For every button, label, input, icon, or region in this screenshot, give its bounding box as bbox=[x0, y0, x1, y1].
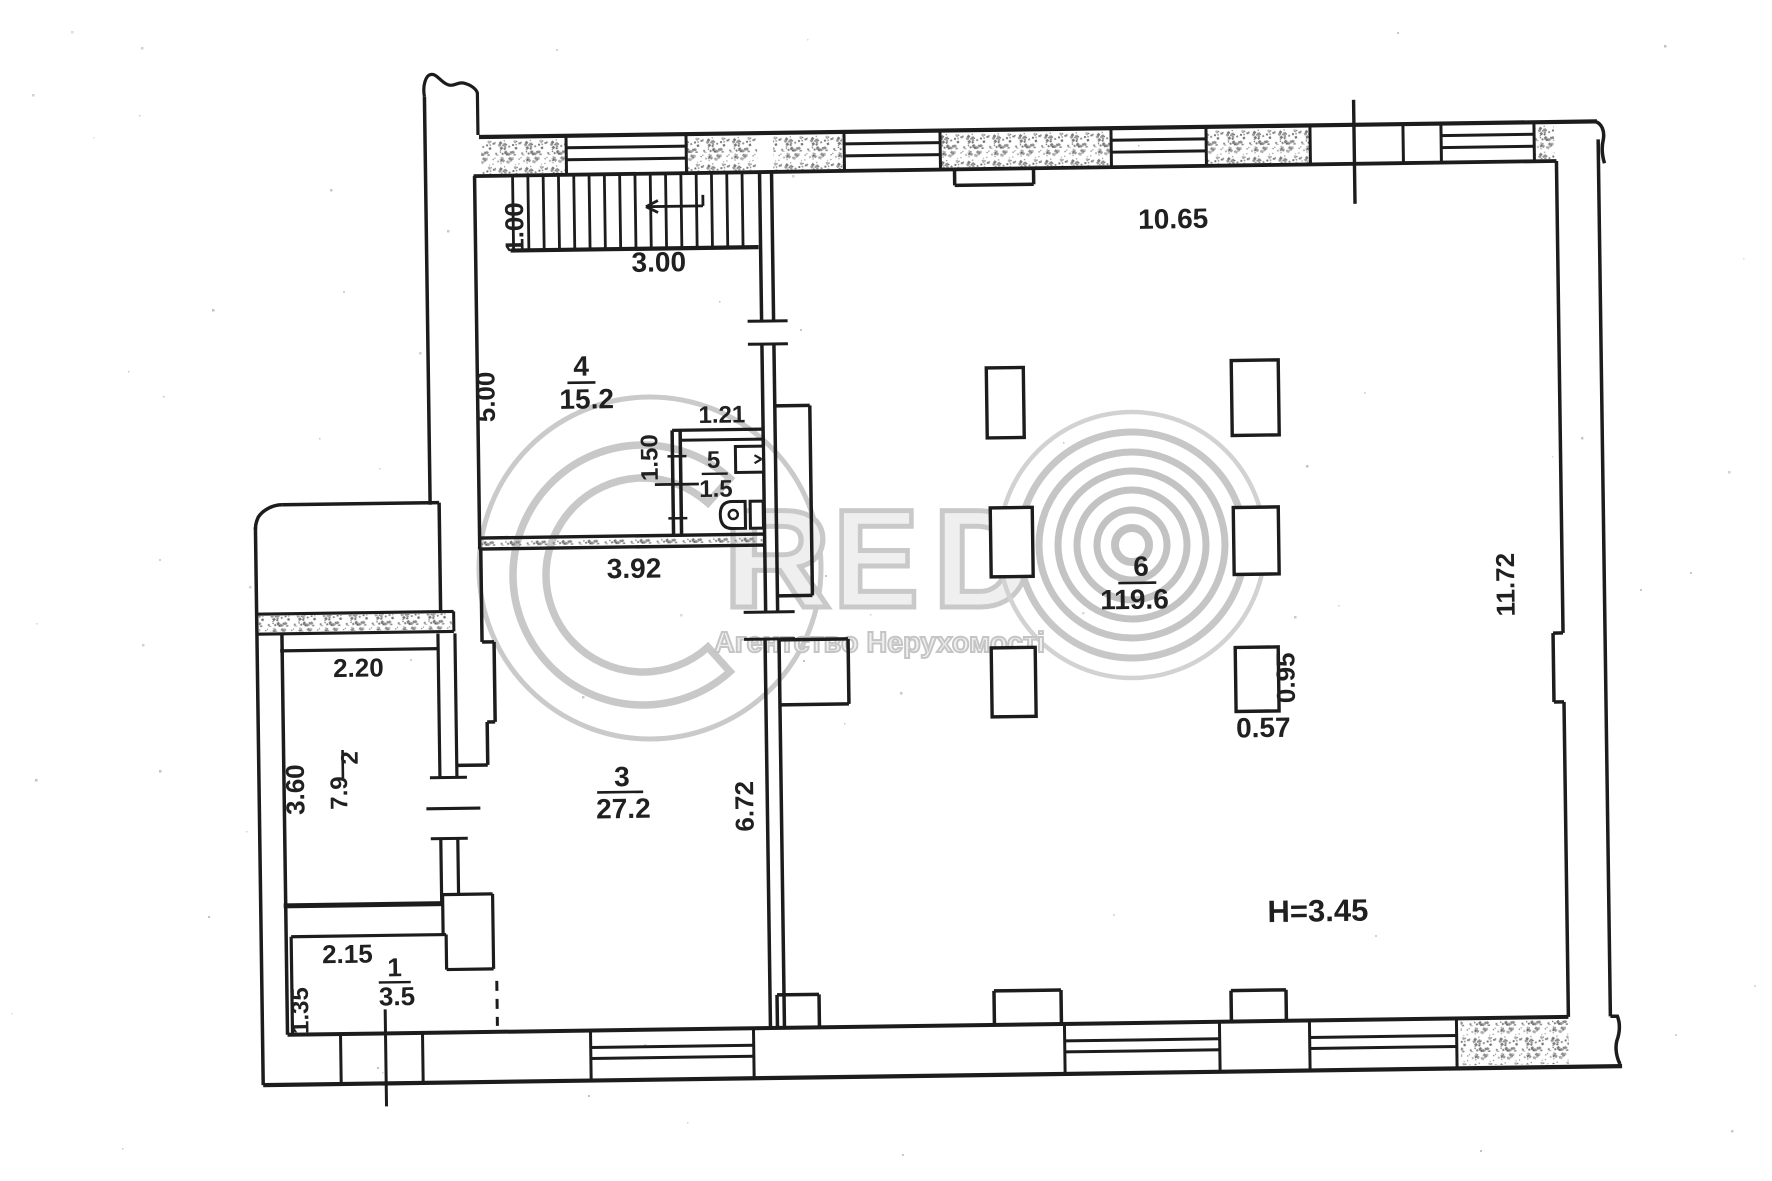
svg-text:6: 6 bbox=[1133, 551, 1149, 582]
svg-text:11.72: 11.72 bbox=[1490, 553, 1521, 617]
svg-text:7.9: 7.9 bbox=[326, 776, 353, 810]
svg-text:2.15: 2.15 bbox=[322, 939, 373, 970]
svg-text:3.00: 3.00 bbox=[631, 246, 686, 278]
svg-text:0.57: 0.57 bbox=[1236, 712, 1291, 744]
svg-text:119.6: 119.6 bbox=[1100, 583, 1169, 615]
svg-text:1.00: 1.00 bbox=[499, 202, 530, 253]
svg-text:6.72: 6.72 bbox=[729, 781, 760, 832]
svg-text:1.5: 1.5 bbox=[699, 476, 733, 503]
svg-text:4: 4 bbox=[573, 350, 589, 381]
svg-text:H=3.45: H=3.45 bbox=[1267, 893, 1368, 929]
svg-text:1.50: 1.50 bbox=[636, 434, 664, 481]
svg-text:1.21: 1.21 bbox=[698, 401, 745, 429]
svg-text:E: E bbox=[833, 480, 919, 637]
svg-text:3.60: 3.60 bbox=[280, 764, 311, 815]
svg-text:1: 1 bbox=[387, 952, 402, 982]
svg-text:27.2: 27.2 bbox=[596, 793, 651, 825]
svg-text:2: 2 bbox=[337, 751, 364, 765]
svg-text:10.65: 10.65 bbox=[1138, 203, 1209, 235]
svg-text:5.00: 5.00 bbox=[470, 371, 501, 422]
svg-text:1.35: 1.35 bbox=[287, 987, 315, 1034]
svg-text:2.20: 2.20 bbox=[333, 652, 384, 683]
svg-text:5: 5 bbox=[707, 447, 721, 474]
svg-text:3.5: 3.5 bbox=[379, 981, 416, 1012]
svg-text:3.92: 3.92 bbox=[607, 553, 662, 585]
svg-text:15.2: 15.2 bbox=[559, 383, 614, 415]
svg-text:3: 3 bbox=[614, 761, 630, 792]
svg-text:0.95: 0.95 bbox=[1270, 652, 1301, 703]
